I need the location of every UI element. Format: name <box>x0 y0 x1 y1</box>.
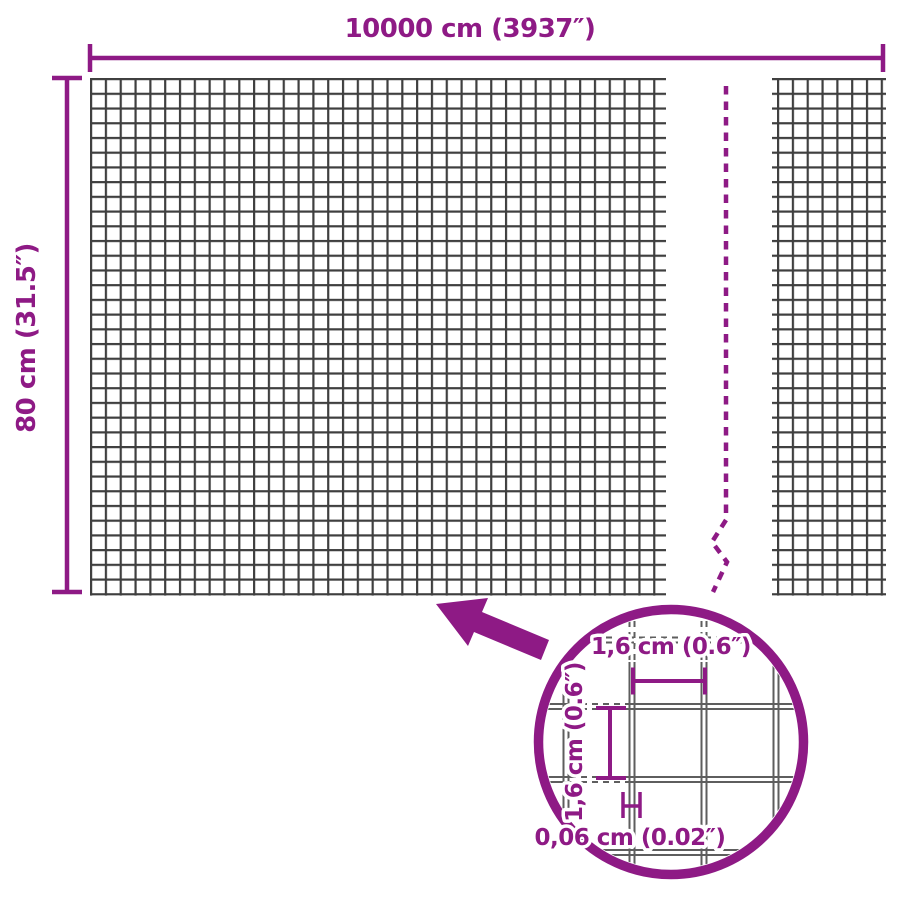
mesh-panel-continuation <box>772 78 886 596</box>
detail-width-label: 1,6 cm (0.6″) <box>591 634 751 660</box>
product-dimension-diagram: 10000 cm (3937″) 80 cm (31.5″) 1,6 cm (0… <box>0 0 900 900</box>
mesh-panel-main <box>90 78 666 596</box>
height-dimension-label: 80 cm (31.5″) <box>12 243 42 433</box>
magnifier-arrow-icon <box>436 598 549 660</box>
detail-magnifier: 1,6 cm (0.6″) 1,6 cm (0.6″) 0,06 cm (0.0… <box>535 610 806 875</box>
width-dimension-label: 10000 cm (3937″) <box>345 14 596 44</box>
detail-wire-thickness-label: 0,06 cm (0.02″) <box>535 825 726 851</box>
break-line <box>712 86 727 592</box>
detail-height-label: 1,6 cm (0.6″) <box>562 662 588 822</box>
width-dimension-line <box>90 44 883 72</box>
width-dimension: 10000 cm (3937″) <box>90 14 883 72</box>
height-dimension: 80 cm (31.5″) <box>12 78 82 592</box>
height-dimension-line <box>52 78 82 592</box>
